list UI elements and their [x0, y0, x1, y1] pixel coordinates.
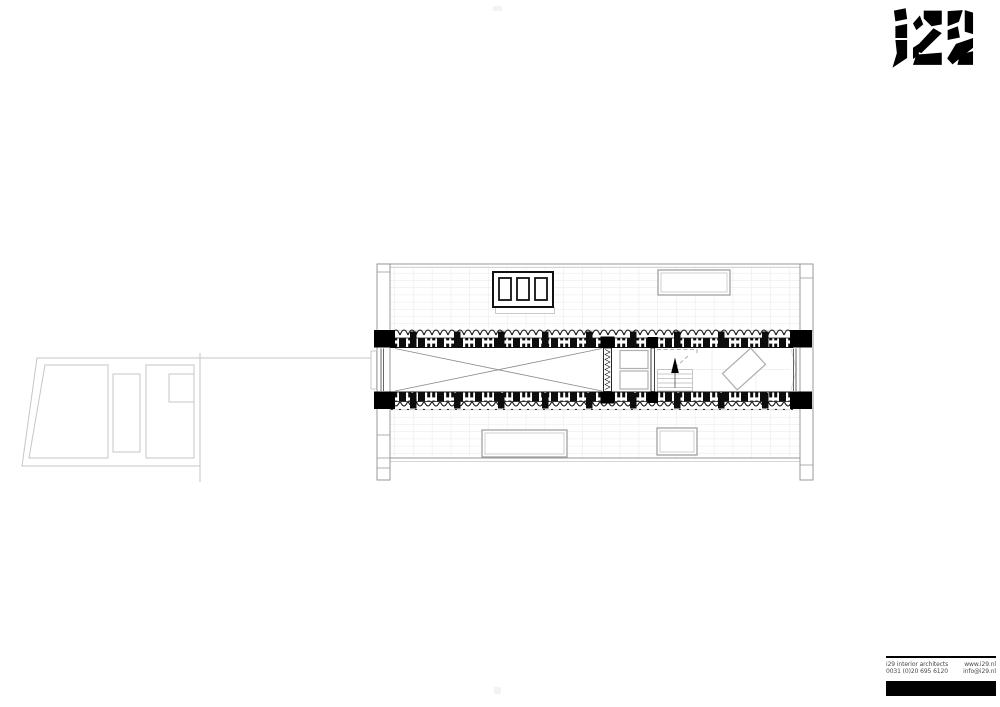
email-address: info@i29.nl [963, 668, 996, 675]
contact-row-2: 0031 (0)20 695 6120 info@i29.nl [886, 668, 996, 675]
furniture-square-2 [620, 371, 648, 389]
skylight-top [658, 270, 730, 295]
dormer-pane-3 [535, 278, 547, 300]
i29-logo [891, 7, 975, 68]
dormer-pane-1 [499, 278, 511, 300]
skylight-bottom-left [482, 430, 567, 457]
drawing-sheet: i29 interior architects www.i29.nl 0031 … [0, 0, 1000, 707]
furniture-square-1 [620, 351, 648, 369]
hatched-wall [604, 348, 612, 392]
left-wall-column [371, 264, 390, 480]
title-block: i29 interior architects www.i29.nl 0031 … [886, 656, 996, 696]
dormer-pane-2 [517, 278, 529, 300]
dormer-window [493, 272, 555, 314]
eave-band-top [390, 329, 793, 348]
logo-i-dot [894, 8, 907, 21]
website: www.i29.nl [964, 661, 996, 668]
phone-number: 0031 (0)20 695 6120 [886, 668, 948, 675]
annex-outline [22, 353, 377, 482]
floor-plan-drawing [0, 0, 1000, 707]
title-block-rule [886, 656, 996, 658]
studio-name: i29 interior architects [886, 661, 948, 668]
partition-wall [651, 348, 655, 392]
eave-band-bottom [390, 392, 793, 410]
title-block-bar [886, 681, 996, 696]
roof-plane-bottom [377, 410, 813, 462]
contact-row-1: i29 interior architects www.i29.nl [886, 661, 996, 668]
skylight-bottom-right [657, 428, 697, 455]
roof-plane-top [377, 264, 800, 331]
left-window-sill [371, 351, 377, 389]
interior-floor [390, 348, 797, 392]
